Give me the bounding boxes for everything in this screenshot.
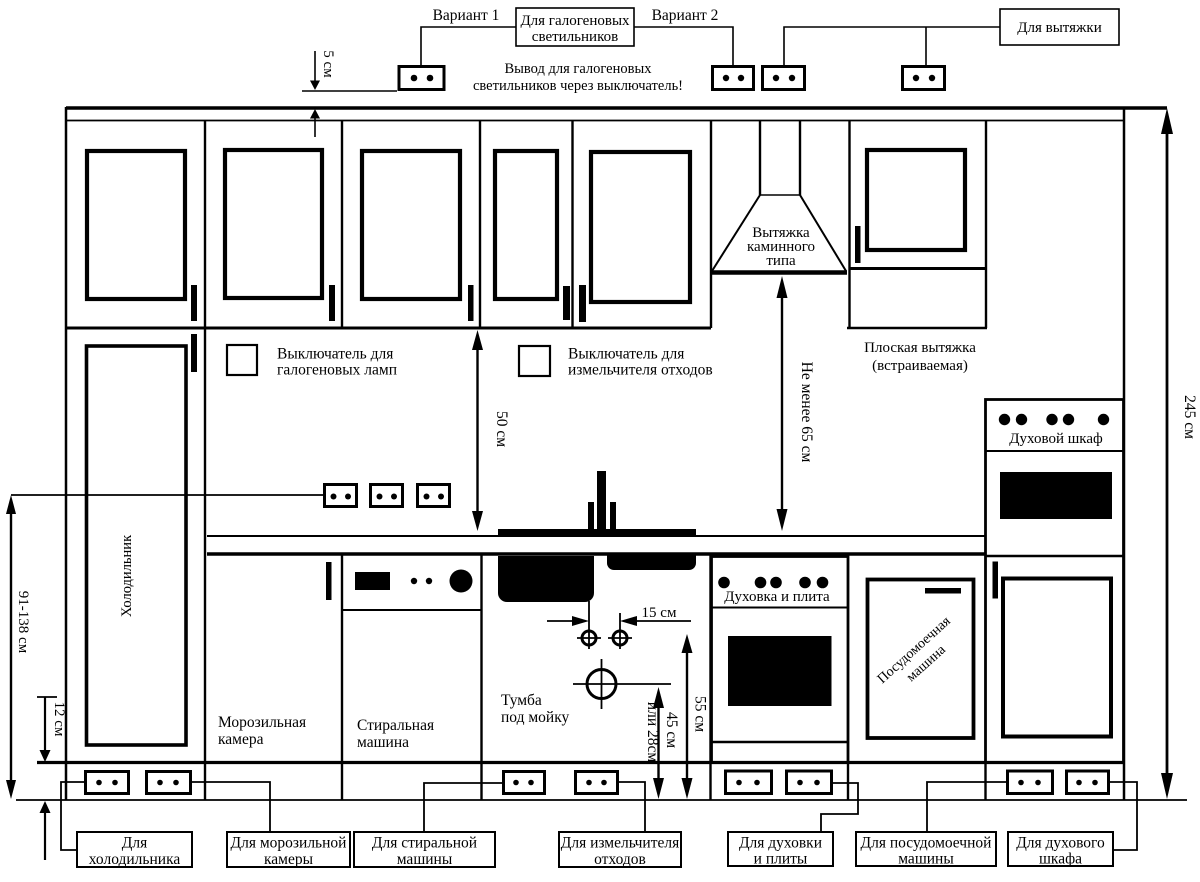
svg-text:Духовка и плита: Духовка и плита <box>724 589 830 605</box>
svg-text:измельчителя отходов: измельчителя отходов <box>568 362 713 379</box>
svg-text:камера: камера <box>218 731 264 748</box>
svg-text:5 см: 5 см <box>320 50 336 78</box>
svg-text:светильников: светильников <box>532 29 618 45</box>
svg-text:Для духовки: Для духовки <box>739 835 822 852</box>
svg-text:холодильника: холодильника <box>89 851 181 868</box>
svg-text:Духовой шкаф: Духовой шкаф <box>1009 431 1103 447</box>
svg-text:или 28см: или 28см <box>644 702 661 763</box>
svg-text:Для посудомоечной: Для посудомоечной <box>861 835 992 852</box>
svg-text:Холодильник: Холодильник <box>119 534 135 617</box>
svg-text:Для измельчителя: Для измельчителя <box>561 835 679 852</box>
svg-text:Вариант 2: Вариант 2 <box>652 7 719 24</box>
svg-text:(встраиваемая): (встраиваемая) <box>872 358 968 374</box>
svg-text:Морозильная: Морозильная <box>218 714 306 731</box>
svg-text:машины: машины <box>898 851 954 868</box>
svg-text:светильников через выключатель: светильников через выключатель! <box>473 78 683 94</box>
svg-text:Вариант 1: Вариант 1 <box>433 7 500 24</box>
svg-text:Для: Для <box>122 835 147 852</box>
svg-text:Для духового: Для духового <box>1016 835 1105 852</box>
svg-text:Для стиральной: Для стиральной <box>372 835 477 852</box>
svg-text:Для галогеновых: Для галогеновых <box>520 13 630 29</box>
svg-text:камеры: камеры <box>264 851 314 868</box>
svg-text:45 см: 45 см <box>663 712 680 748</box>
svg-text:под мойку: под мойку <box>501 709 570 726</box>
svg-text:галогеновых ламп: галогеновых ламп <box>277 362 397 379</box>
svg-text:отходов: отходов <box>594 851 646 868</box>
svg-text:Плоская вытяжка: Плоская вытяжка <box>864 340 976 356</box>
svg-text:машины: машины <box>397 851 453 868</box>
svg-text:Выключатель для: Выключатель для <box>568 346 684 363</box>
svg-text:Стиральная: Стиральная <box>357 717 434 734</box>
svg-text:15 см: 15 см <box>642 605 677 621</box>
svg-text:машина: машина <box>357 734 409 751</box>
svg-text:Выключатель для: Выключатель для <box>277 346 393 363</box>
svg-text:50 см: 50 см <box>493 411 510 447</box>
svg-text:и плиты: и плиты <box>754 851 808 868</box>
svg-text:Тумба: Тумба <box>501 692 542 709</box>
svg-text:91-138 см: 91-138 см <box>15 591 31 654</box>
svg-text:Для морозильной: Для морозильной <box>231 835 347 852</box>
svg-text:245 см: 245 см <box>1181 395 1198 439</box>
svg-text:Не менее 65 см: Не менее 65 см <box>798 362 815 463</box>
svg-text:55 см: 55 см <box>692 696 709 732</box>
svg-text:Для вытяжки: Для вытяжки <box>1017 20 1101 36</box>
svg-text:типа: типа <box>766 253 796 269</box>
svg-text:Вывод для галогеновых: Вывод для галогеновых <box>505 61 653 77</box>
svg-text:12 см: 12 см <box>51 702 67 737</box>
svg-text:шкафа: шкафа <box>1039 851 1082 868</box>
